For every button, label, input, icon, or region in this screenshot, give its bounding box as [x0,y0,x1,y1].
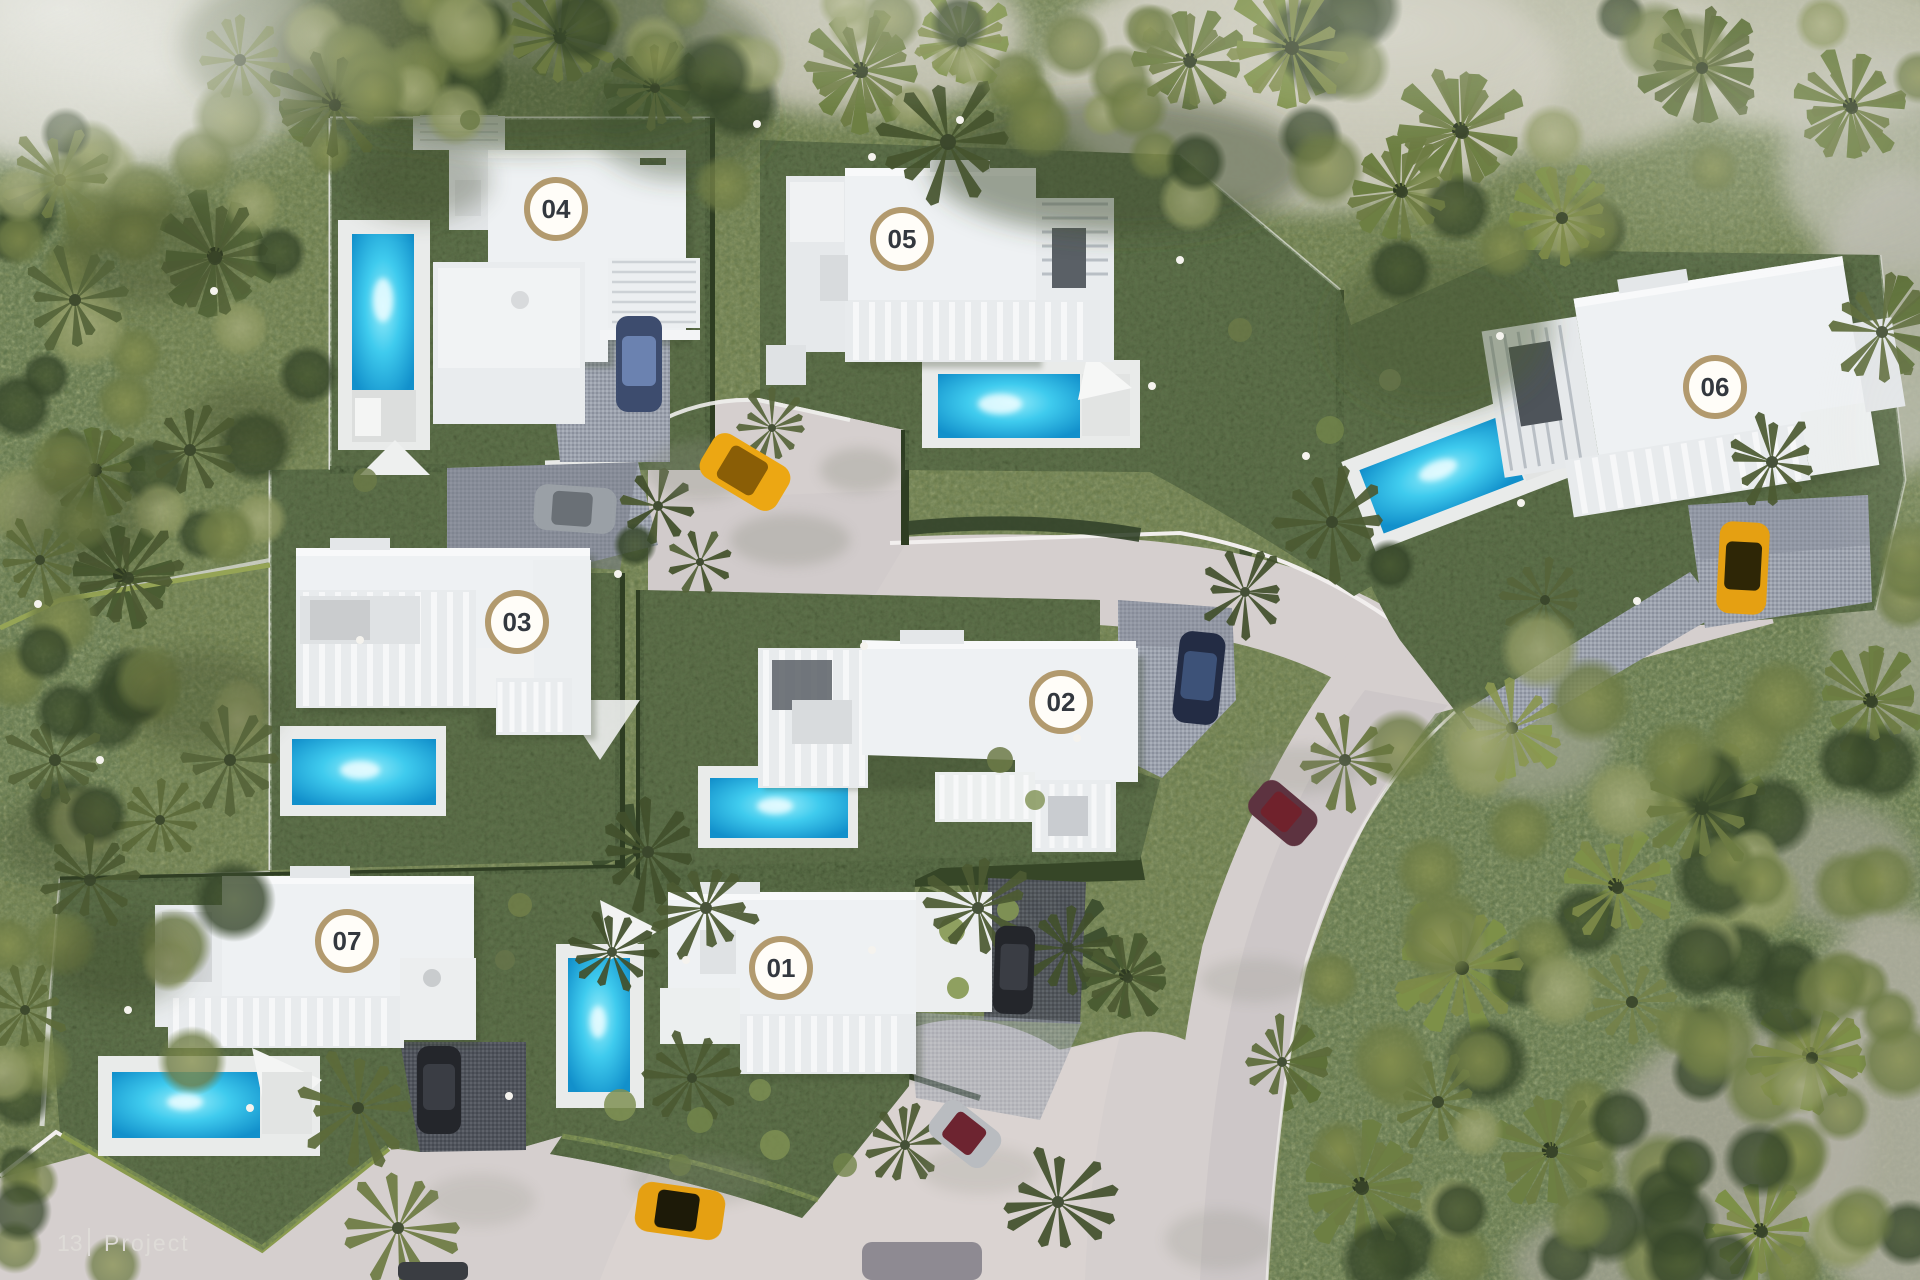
svg-text:06: 06 [1701,372,1730,402]
svg-text:07: 07 [333,926,362,956]
svg-text:05: 05 [888,224,917,254]
svg-text:04: 04 [542,194,571,224]
svg-text:01: 01 [767,953,796,983]
svg-text:02: 02 [1047,687,1076,717]
svg-text:13: 13 [57,1230,83,1256]
svg-text:Project: Project [104,1230,190,1256]
svg-text:03: 03 [503,607,532,637]
